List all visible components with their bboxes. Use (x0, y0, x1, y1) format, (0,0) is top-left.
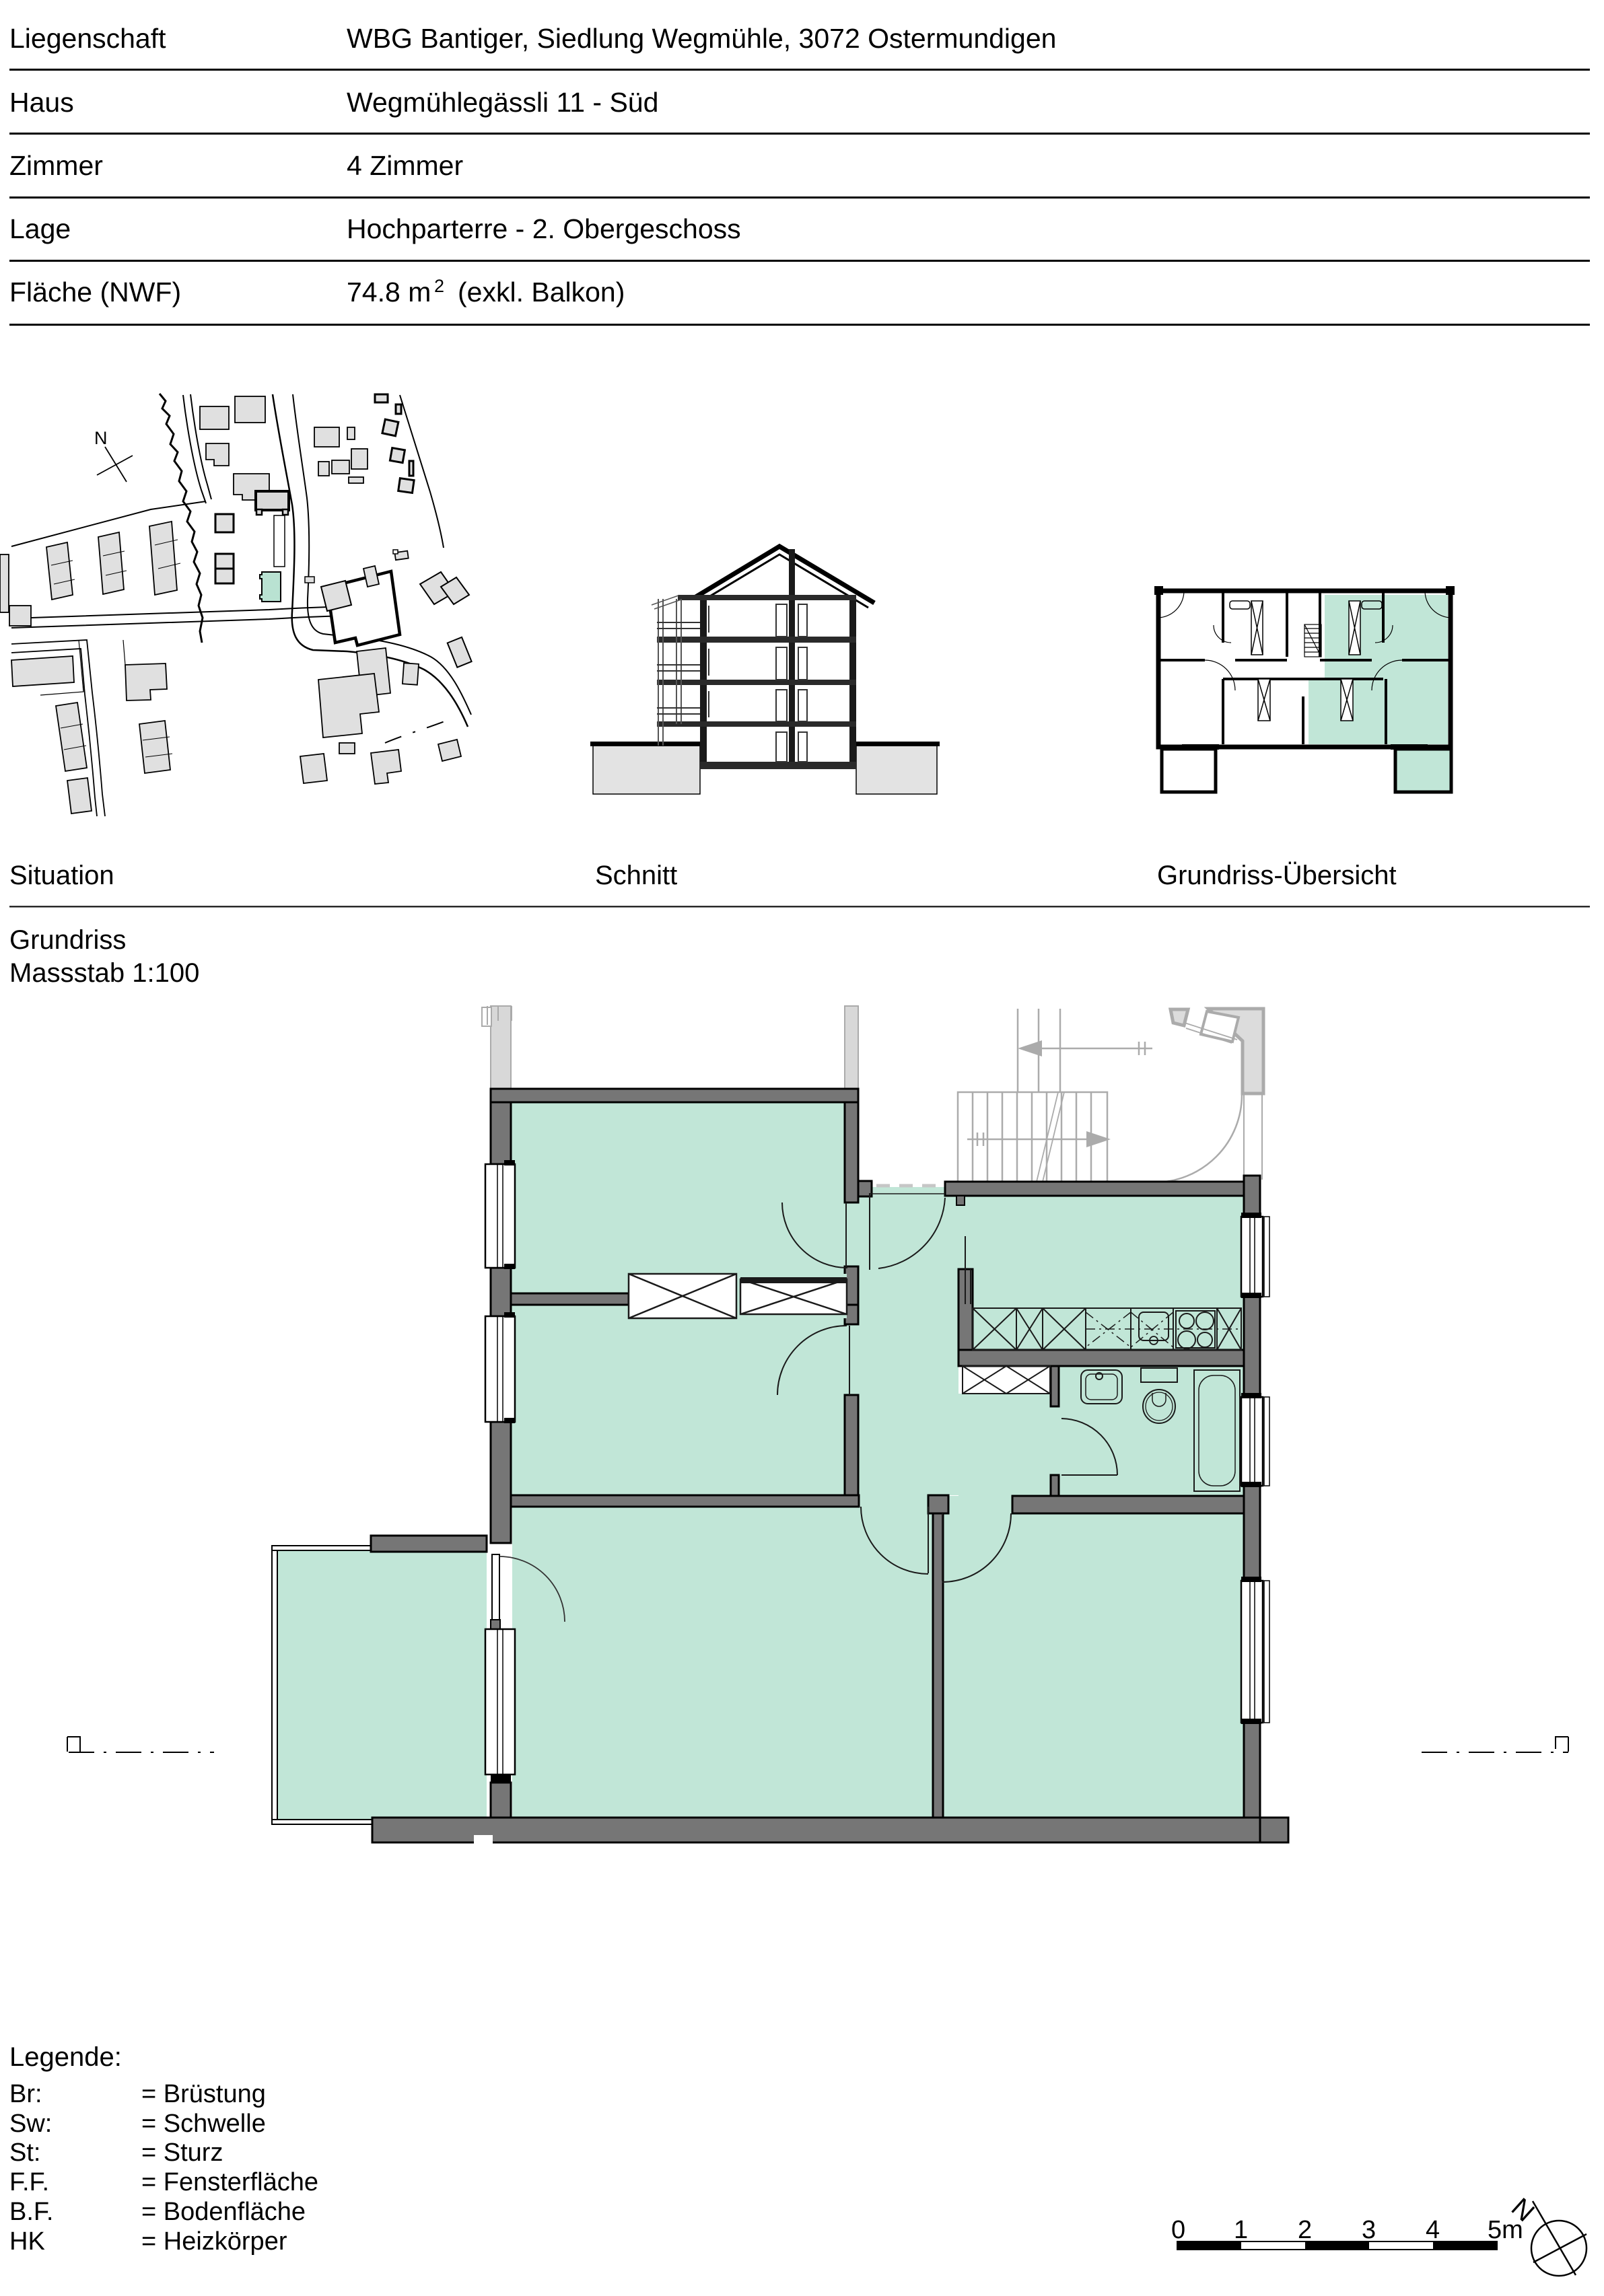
svg-text:Legende:: Legende: (9, 2042, 122, 2072)
svg-text:4 Zimmer: 4 Zimmer (347, 150, 463, 181)
svg-text:3: 3 (1362, 2216, 1376, 2244)
svg-text:HK: HK (9, 2227, 45, 2256)
svg-text:N: N (94, 428, 108, 448)
svg-text:Grundriss: Grundriss (9, 925, 126, 955)
svg-text:= Sturz: = Sturz (141, 2139, 223, 2167)
svg-text:Zimmer: Zimmer (9, 150, 103, 181)
svg-text:Hochparterre - 2. Obergeschoss: Hochparterre - 2. Obergeschoss (347, 213, 741, 244)
svg-text:Massstab 1:100: Massstab 1:100 (9, 958, 199, 988)
svg-text:= Brüstung: = Brüstung (141, 2080, 266, 2108)
svg-text:Wegmühlegässli 11 - Süd: Wegmühlegässli 11 - Süd (347, 87, 658, 118)
svg-text:Br:: Br: (9, 2080, 42, 2108)
svg-text:Sw:: Sw: (9, 2110, 52, 2138)
svg-text:Situation: Situation (9, 861, 114, 890)
svg-text:Lage: Lage (9, 213, 71, 244)
svg-text:WBG Bantiger, Siedlung Wegmühl: WBG Bantiger, Siedlung Wegmühle, 3072 Os… (347, 23, 1056, 54)
svg-text:Grundriss-Übersicht: Grundriss-Übersicht (1157, 861, 1397, 890)
svg-text:Haus: Haus (9, 87, 74, 118)
svg-text:Schnitt: Schnitt (595, 861, 677, 890)
svg-text:= Bodenfläche: = Bodenfläche (141, 2198, 306, 2226)
svg-text:Fläche (NWF): Fläche (NWF) (9, 277, 181, 308)
svg-text:= Heizkörper: = Heizkörper (141, 2227, 287, 2256)
svg-text:2: 2 (434, 276, 444, 296)
svg-text:2: 2 (1298, 2216, 1312, 2244)
svg-text:1: 1 (1234, 2216, 1248, 2244)
svg-text:St:: St: (9, 2139, 40, 2167)
svg-text:(exkl. Balkon): (exkl. Balkon) (458, 277, 625, 308)
svg-text:4: 4 (1426, 2216, 1440, 2244)
svg-text:F.F.: F.F. (9, 2168, 49, 2196)
svg-text:= Fensterfläche: = Fensterfläche (141, 2168, 318, 2196)
svg-text:0: 0 (1171, 2216, 1185, 2244)
svg-text:B.F.: B.F. (9, 2198, 53, 2226)
svg-text:Liegenschaft: Liegenschaft (9, 23, 166, 54)
svg-text:= Schwelle: = Schwelle (141, 2110, 266, 2138)
svg-text:74.8 m: 74.8 m (347, 277, 431, 308)
